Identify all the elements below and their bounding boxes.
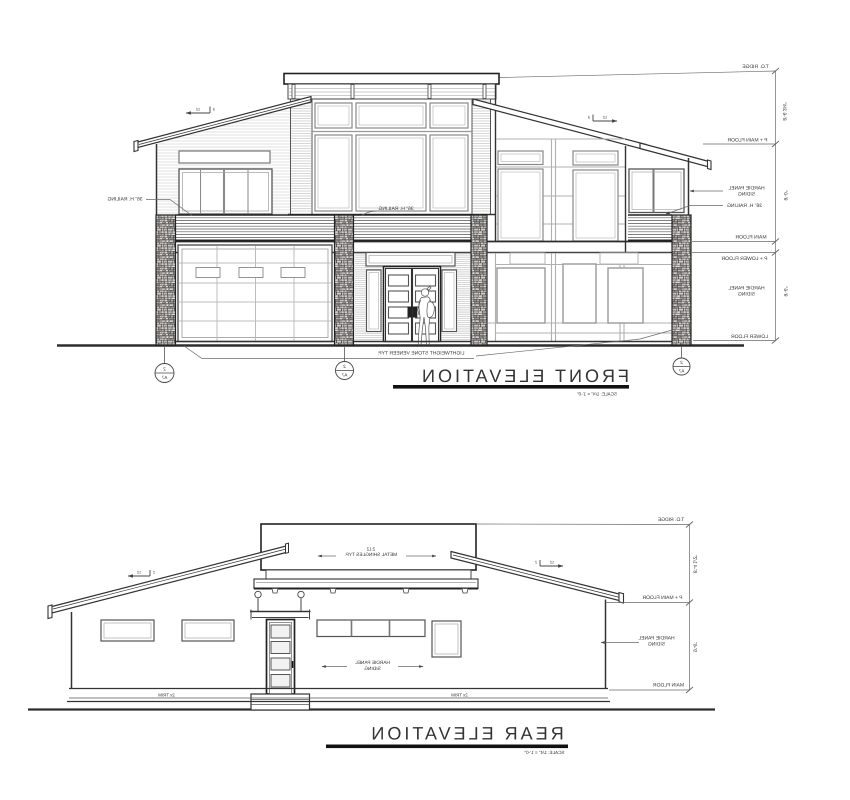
svg-text:LIGHTWEIGHT STONE VENEER TYP.: LIGHTWEIGHT STONE VENEER TYP. [378,351,465,357]
svg-text:8'-6 3/4": 8'-6 3/4" [781,102,787,121]
svg-text:SCALE: 1/4" = 1'-0": SCALE: 1/4" = 1'-0" [577,392,617,397]
svg-text:SIDING: SIDING [648,642,665,648]
svg-text:REAR ELEVATION: REAR ELEVATION [368,724,563,744]
svg-text:2: 2 [153,571,155,575]
svg-text:METAL SHINGLES TYP.: METAL SHINGLES TYP. [345,552,397,558]
svg-text:12: 12 [137,571,141,575]
svg-text:2:12: 2:12 [366,547,375,552]
svg-text:8'-4 1/2": 8'-4 1/2" [692,555,698,574]
svg-text:3: 3 [588,116,590,120]
svg-text:A7: A7 [678,369,684,374]
svg-text:36" H. RAILING: 36" H. RAILING [727,203,762,209]
svg-text:A7: A7 [341,373,347,378]
svg-text:2: 2 [680,360,683,365]
svg-text:SIDING: SIDING [738,292,755,298]
svg-text:LOWER FLOOR: LOWER FLOOR [731,334,768,340]
svg-text:P + MAIN FLOOR: P + MAIN FLOOR [642,595,682,601]
svg-text:SIDING: SIDING [738,192,755,198]
svg-text:12: 12 [603,116,607,120]
svg-text:2: 2 [535,561,537,565]
svg-text:2x TRIM: 2x TRIM [158,693,175,698]
svg-text:36" H. RAILING: 36" H. RAILING [107,197,142,203]
svg-text:A7: A7 [161,375,167,380]
svg-text:SCALE: 1/4" = 1'-0": SCALE: 1/4" = 1'-0" [524,750,564,755]
svg-text:FRONT ELEVATION: FRONT ELEVATION [419,366,629,386]
svg-text:2: 2 [343,364,346,369]
svg-text:2x TRIM: 2x TRIM [451,693,468,698]
svg-text:3: 3 [213,108,215,112]
svg-text:T.O. RIDGE: T.O. RIDGE [657,517,684,523]
svg-text:P + LOWER FLOOR: P + LOWER FLOOR [721,256,767,262]
svg-text:12: 12 [196,108,200,112]
svg-text:P + MAIN FLOOR: P + MAIN FLOOR [727,138,767,144]
svg-text:9'-0": 9'-0" [782,190,788,200]
svg-text:9'-6": 9'-6" [692,642,698,652]
svg-text:HARDIE PANEL: HARDIE PANEL [355,660,390,666]
svg-text:36" H. RAILING: 36" H. RAILING [378,206,413,212]
svg-text:SIDING: SIDING [364,666,381,672]
svg-text:T.O. RIDGE: T.O. RIDGE [742,64,769,70]
svg-text:2: 2 [163,366,166,371]
svg-text:MAIN FLOOR: MAIN FLOOR [653,683,685,689]
svg-text:12: 12 [550,561,554,565]
svg-text:9'-6": 9'-6" [782,286,788,296]
svg-text:MAIN FLOOR: MAIN FLOOR [735,235,767,241]
